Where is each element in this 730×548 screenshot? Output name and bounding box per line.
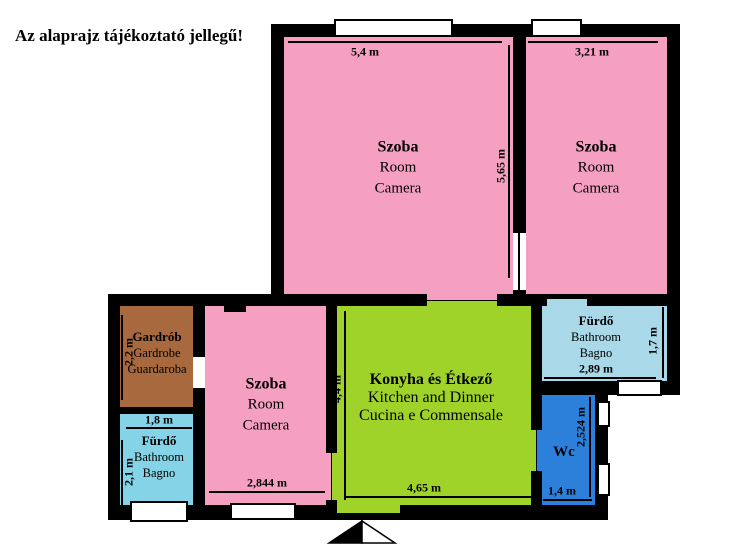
dim-label-18: 1,8 m <box>145 413 173 428</box>
window-room-bottom <box>230 503 296 520</box>
dim-label-2524: 2,524 m <box>574 407 589 447</box>
dim-label-565: 5,65 m <box>494 149 509 183</box>
wall-divider-top-rooms <box>513 37 526 233</box>
wall-left-upper <box>271 24 284 306</box>
door-wardrobe <box>193 357 205 388</box>
plan-disclaimer-title: Az alaprajz tájékoztató jellegű! <box>15 26 243 46</box>
bathroom-right-label: Fürdő Bathroom Bagno <box>571 313 621 361</box>
dim-line-17 <box>662 307 664 378</box>
dim-line-2844 <box>209 491 325 493</box>
entrance-opening <box>337 505 400 513</box>
dim-line-2524 <box>589 397 591 497</box>
kitchen-label: Konyha és Étkező Kitchen and Dinner Cuci… <box>359 371 503 425</box>
wall-middle-band <box>108 294 680 306</box>
room-top-right-label: Szoba Room Camera <box>573 137 620 200</box>
dim-line-321 <box>528 41 658 43</box>
door-room-kitchen-right <box>332 453 337 500</box>
wall-wardrobe-right <box>193 306 205 505</box>
wardrobe-label: Gardrób Gardrobe Guardaroba <box>128 329 187 377</box>
dim-label-17: 1,7 m <box>646 327 661 355</box>
door-leaf-line <box>518 233 520 290</box>
window-top-right <box>531 19 582 37</box>
door-bathroom-right-exit <box>617 380 662 396</box>
dim-line-289 <box>544 377 656 379</box>
wall-right-outer <box>667 24 680 395</box>
dim-line-465 <box>345 496 538 498</box>
north-arrow-icon <box>320 517 404 547</box>
room-bottom-left-label: Szoba Room Camera <box>243 374 290 437</box>
window-wc-lower <box>597 463 610 496</box>
wall-left-lower <box>108 294 120 520</box>
dim-label-44: 4,4 m <box>330 375 345 403</box>
dim-label-465: 4,65 m <box>407 481 441 496</box>
wc-label: Wc <box>553 443 575 461</box>
floor-plan: Az alaprajz tájékoztató jellegű! <box>0 0 730 548</box>
dim-label-289: 2,89 m <box>579 362 613 377</box>
bathroom-left-label: Fürdő Bathroom Bagno <box>134 433 184 481</box>
wall-stub-room-bottom <box>224 306 246 312</box>
wall-top <box>271 24 680 37</box>
window-bathroom-left <box>130 501 188 522</box>
dim-label-14: 1,4 m <box>548 484 576 499</box>
dim-label-54: 5,4 m <box>351 45 379 60</box>
entrance-line <box>337 513 400 515</box>
dim-label-321: 3,21 m <box>575 45 609 60</box>
opening-room-kitchen-bottom <box>427 301 497 306</box>
room-top-middle-label: Szoba Room Camera <box>375 137 422 200</box>
window-wc-upper <box>597 401 610 427</box>
dim-line-54 <box>288 41 502 43</box>
dim-line-44 <box>344 311 346 500</box>
dim-line-14 <box>543 499 592 501</box>
door-bathroom-right <box>547 299 587 306</box>
door-wc-right <box>537 430 542 471</box>
dim-label-2844: 2,844 m <box>247 476 287 491</box>
window-top-middle <box>334 19 453 37</box>
wall-kitchen-right <box>531 306 542 505</box>
